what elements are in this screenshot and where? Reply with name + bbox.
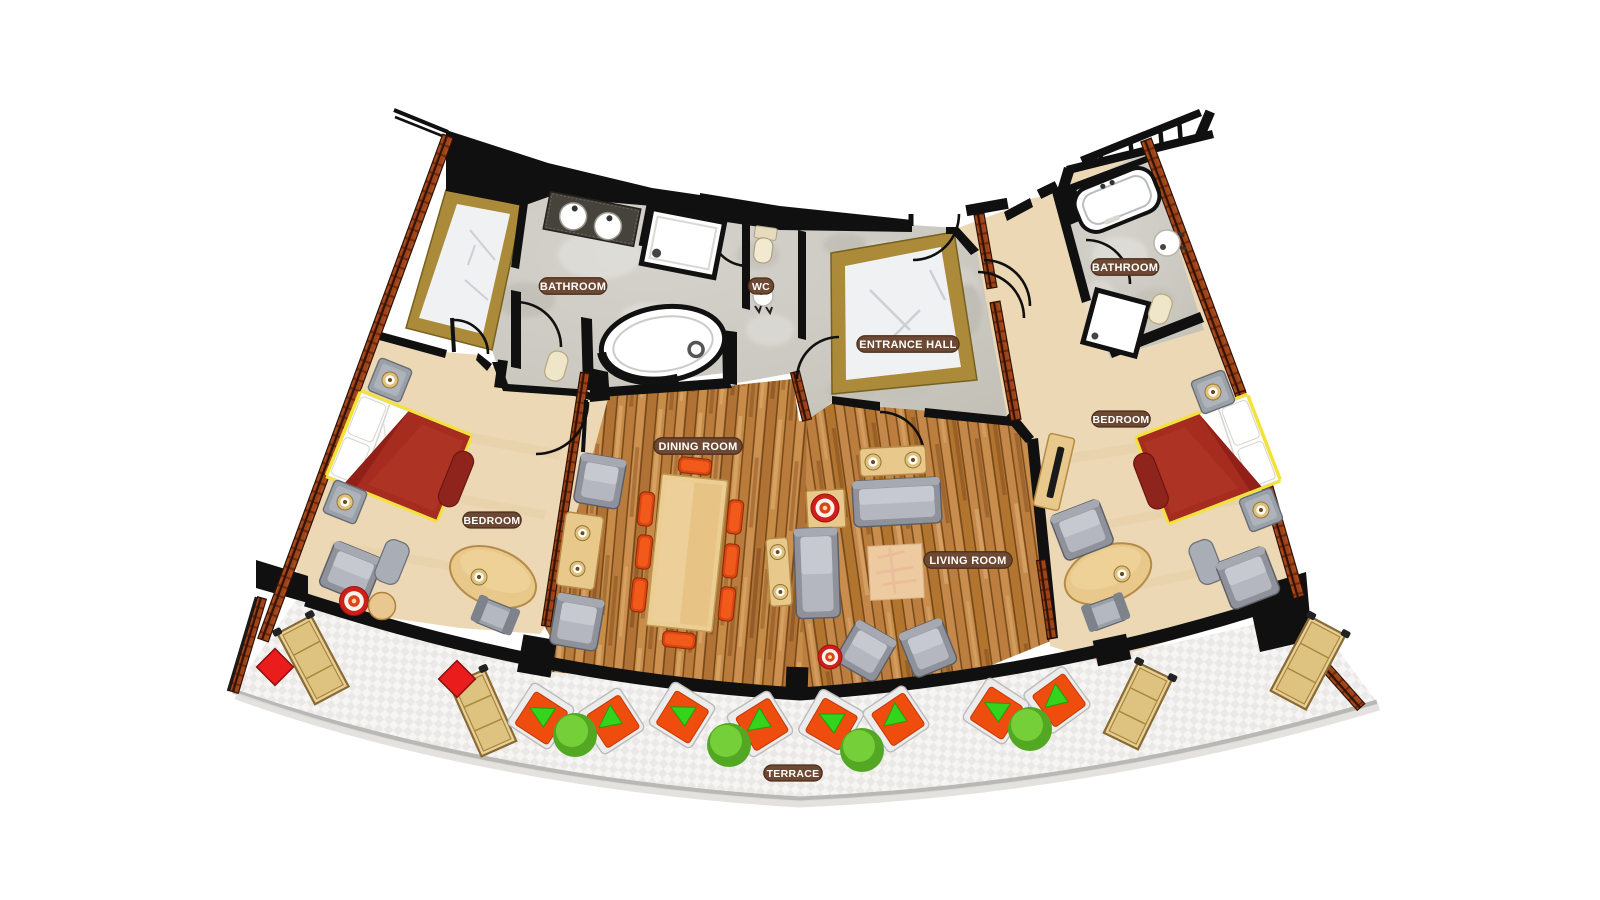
svg-text:BATHROOM: BATHROOM (1092, 262, 1158, 274)
svg-text:ENTRANCE HALL: ENTRANCE HALL (859, 339, 956, 351)
svg-text:BEDROOM: BEDROOM (1093, 414, 1150, 426)
svg-text:WC: WC (752, 281, 770, 293)
svg-text:DINING ROOM: DINING ROOM (658, 441, 737, 453)
svg-text:TERRACE: TERRACE (767, 768, 820, 780)
svg-text:LIVING ROOM: LIVING ROOM (929, 555, 1006, 567)
svg-text:BEDROOM: BEDROOM (464, 515, 521, 527)
svg-text:BATHROOM: BATHROOM (540, 281, 606, 293)
